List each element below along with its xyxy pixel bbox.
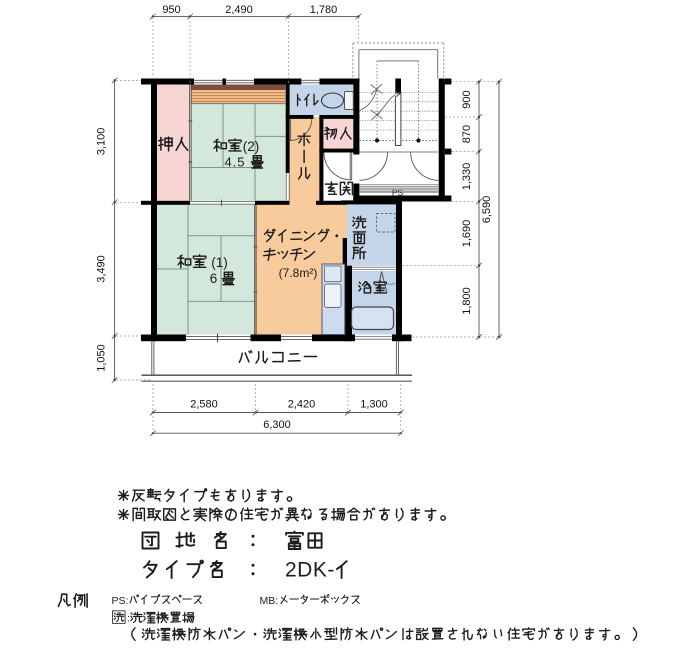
svg-text:MB:: MB: — [260, 595, 279, 607]
svg-text:PS:: PS: — [112, 595, 129, 607]
svg-text:1,780: 1,780 — [310, 4, 338, 16]
svg-text:(7.8m²): (7.8m²) — [279, 266, 318, 280]
svg-text:6,590: 6,590 — [481, 196, 493, 224]
svg-text:950: 950 — [162, 4, 180, 16]
svg-text:2,580: 2,580 — [190, 399, 218, 411]
svg-text:1,300: 1,300 — [360, 399, 388, 411]
svg-text:1,050: 1,050 — [96, 344, 108, 372]
svg-text:1,800: 1,800 — [461, 287, 473, 315]
svg-text:(2): (2) — [243, 139, 260, 154]
svg-text:6: 6 — [210, 271, 218, 286]
svg-text:4.5: 4.5 — [224, 154, 245, 169]
svg-text:2,420: 2,420 — [288, 399, 316, 411]
svg-text:2DK-: 2DK- — [285, 559, 335, 582]
svg-text:900: 900 — [461, 90, 473, 108]
svg-text::: : — [127, 613, 130, 625]
svg-text:870: 870 — [461, 125, 473, 143]
svg-text:1,690: 1,690 — [461, 220, 473, 248]
svg-text:6,300: 6,300 — [263, 419, 291, 431]
svg-text:3,100: 3,100 — [96, 128, 108, 156]
svg-text:2,490: 2,490 — [225, 4, 253, 16]
svg-text:1,330: 1,330 — [461, 163, 473, 191]
svg-text:3,490: 3,490 — [96, 255, 108, 283]
svg-text:(1): (1) — [211, 255, 228, 270]
svg-text:PS: PS — [392, 188, 404, 198]
